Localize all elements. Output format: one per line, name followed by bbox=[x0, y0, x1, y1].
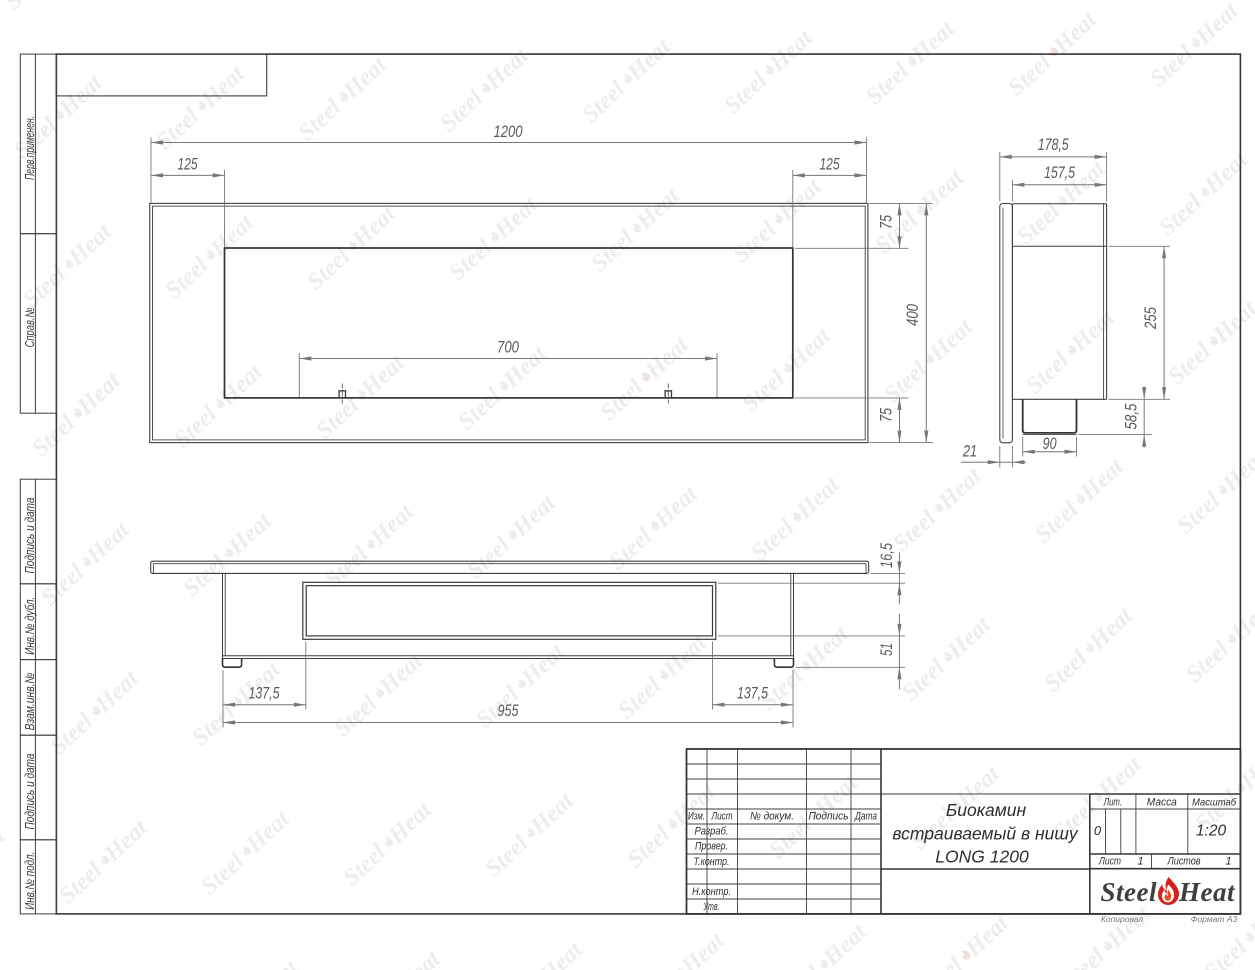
svg-text:75: 75 bbox=[877, 215, 896, 229]
svg-text:LONG 1200: LONG 1200 bbox=[935, 847, 1029, 867]
svg-text:Лист: Лист bbox=[1098, 856, 1121, 868]
svg-text:Изм.: Изм. bbox=[688, 811, 705, 823]
svg-text:16,5: 16,5 bbox=[877, 543, 896, 568]
svg-text:90: 90 bbox=[1043, 434, 1057, 453]
svg-text:Steel: Steel bbox=[1101, 877, 1158, 907]
svg-text:1: 1 bbox=[1137, 856, 1143, 868]
svg-text:255: 255 bbox=[1141, 307, 1160, 330]
svg-text:Разраб.: Разраб. bbox=[695, 826, 729, 838]
svg-text:Формат А3: Формат А3 bbox=[1191, 914, 1238, 924]
svg-text:157,5: 157,5 bbox=[1044, 163, 1075, 182]
svg-text:51: 51 bbox=[877, 643, 896, 656]
svg-text:Лит.: Лит. bbox=[1103, 797, 1122, 809]
svg-text:955: 955 bbox=[498, 701, 519, 720]
svg-text:Масштаб: Масштаб bbox=[1192, 797, 1237, 809]
svg-text:Инв.№ подл.: Инв.№ подл. bbox=[23, 852, 37, 910]
svg-text:Перв.применен.: Перв.применен. bbox=[23, 116, 37, 180]
svg-text:Инв.№ дубл.: Инв.№ дубл. bbox=[23, 597, 37, 655]
svg-text:125: 125 bbox=[820, 155, 840, 174]
svg-text:Дата: Дата bbox=[853, 811, 877, 823]
svg-text:Биокамин: Биокамин bbox=[946, 800, 1027, 820]
svg-text:встраиваемый в нишу: встраиваемый в нишу bbox=[892, 824, 1078, 844]
svg-text:Т.контр.: Т.контр. bbox=[694, 856, 730, 868]
svg-text:Листов: Листов bbox=[1167, 856, 1201, 868]
svg-text:1:20: 1:20 bbox=[1196, 823, 1227, 840]
svg-text:1: 1 bbox=[1225, 856, 1231, 868]
svg-text:Н.контр.: Н.контр. bbox=[692, 886, 731, 898]
svg-text:Лист: Лист bbox=[711, 811, 733, 823]
svg-text:Справ.№: Справ.№ bbox=[23, 307, 37, 347]
svg-text:Подпись и дата: Подпись и дата bbox=[23, 753, 37, 829]
svg-text:Масса: Масса bbox=[1147, 797, 1177, 809]
svg-text:75: 75 bbox=[877, 408, 896, 422]
svg-text:Провер.: Провер. bbox=[695, 841, 728, 853]
svg-text:1200: 1200 bbox=[494, 122, 523, 141]
svg-text:137,5: 137,5 bbox=[249, 683, 280, 702]
svg-text:0: 0 bbox=[1094, 823, 1102, 838]
svg-text:400: 400 bbox=[903, 304, 922, 326]
svg-text:Утв.: Утв. bbox=[703, 901, 720, 913]
svg-text:Копировал: Копировал bbox=[1101, 914, 1143, 924]
svg-text:125: 125 bbox=[178, 155, 198, 174]
svg-text:137,5: 137,5 bbox=[737, 683, 768, 702]
svg-text:Подпись: Подпись bbox=[809, 811, 849, 823]
svg-text:№ докум.: № докум. bbox=[750, 811, 794, 823]
svg-text:Взам.инв.№: Взам.инв.№ bbox=[23, 672, 37, 730]
svg-text:58,5: 58,5 bbox=[1122, 403, 1141, 429]
svg-text:178,5: 178,5 bbox=[1038, 135, 1069, 154]
svg-text:21: 21 bbox=[962, 442, 977, 461]
svg-text:Подпись и дата: Подпись и дата bbox=[23, 497, 37, 573]
svg-text:700: 700 bbox=[497, 337, 519, 356]
svg-text:Heat: Heat bbox=[1178, 877, 1236, 907]
